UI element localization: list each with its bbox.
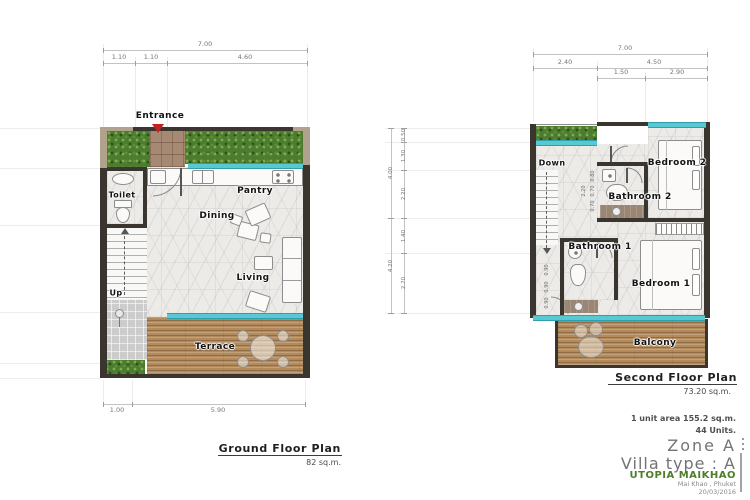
stove	[272, 170, 294, 184]
dim-tick	[707, 76, 708, 81]
balcony-rim	[555, 319, 558, 368]
dim-tick	[401, 253, 407, 254]
sf-dim-line-total	[533, 54, 707, 55]
closet-hangers	[655, 223, 704, 235]
wall	[597, 218, 710, 222]
dim-tick	[401, 313, 407, 314]
bedroom1-blanket-line	[652, 240, 653, 310]
terrace-chair	[237, 330, 249, 342]
bedroom2-pillow	[692, 170, 700, 190]
bathroom2-basin	[612, 207, 621, 216]
wall	[597, 162, 648, 166]
wall	[303, 127, 310, 165]
extension-line	[132, 380, 133, 404]
living-label: Living	[236, 273, 269, 283]
wall	[100, 127, 107, 168]
bathroom1-basin	[574, 302, 583, 311]
units-text: 44 Units.	[520, 426, 736, 435]
unit-area-text: 1 unit area 155.2 sq.m.	[520, 414, 736, 423]
balcony-lounge	[578, 336, 604, 358]
wall	[100, 168, 107, 378]
extension-line	[533, 48, 534, 122]
dim-tick	[103, 61, 104, 66]
wall	[143, 167, 147, 228]
gf-dim-seg2: 1.10	[144, 53, 158, 61]
planter-glass	[536, 140, 597, 146]
sf-chain-total: 2.20	[581, 185, 587, 196]
sf-dim-left-outer2: 4.20	[388, 260, 394, 272]
dim-tick	[597, 66, 598, 71]
second-floor-plan: Down Bedroom 2 Bathroom 2 2.20 0.80 0.70…	[530, 122, 710, 370]
dim-tick	[401, 218, 407, 219]
shower-stem	[119, 317, 120, 327]
stairs-down	[536, 170, 558, 245]
terrace-chair	[277, 330, 289, 342]
bathroom2-label: Bathroom 2	[608, 192, 671, 202]
bedroom2-label: Bedroom 2	[648, 158, 707, 168]
dim-tick	[401, 142, 407, 143]
terrace-label: Terrace	[195, 342, 235, 352]
dim-tick	[307, 61, 308, 66]
sf-b1chain1: 0.90	[544, 264, 550, 275]
sf-dim-left-inner5: 2.70	[401, 277, 407, 289]
terrace-chair	[277, 356, 289, 368]
dim-tick	[533, 52, 534, 57]
sf-b1chain2: 0.90	[544, 281, 550, 292]
stair-direction-arrow	[543, 248, 551, 254]
stair-direction-arrow	[121, 228, 129, 234]
construction-line	[0, 312, 100, 313]
terrace-table	[250, 335, 276, 361]
dim-tick	[597, 76, 598, 81]
balcony-label: Balcony	[634, 338, 677, 348]
coffee-table	[254, 256, 273, 270]
dim-tick	[135, 61, 136, 66]
down-label: Down	[539, 159, 566, 168]
entrance-stone-path	[150, 131, 185, 167]
sf-dim-sub1: 1.50	[614, 68, 628, 76]
gf-dim-bottom1: 1.00	[110, 406, 124, 414]
dim-tick	[707, 66, 708, 71]
gf-area: 82 sq.m.	[241, 458, 341, 467]
balcony-rim	[705, 319, 708, 368]
sf-chain2: 0.70	[590, 185, 596, 196]
dining-label: Dining	[199, 211, 234, 221]
sf-dim-left-inner2: 1.30	[401, 150, 407, 162]
gf-dim-line-bottom	[103, 404, 305, 405]
dim-tick	[388, 218, 394, 219]
planter-edge	[536, 124, 597, 125]
extension-line	[305, 380, 306, 404]
sf-area: 73.20 sq.m.	[631, 387, 731, 396]
gf-dim-seg1: 1.10	[112, 53, 126, 61]
sf-dim-left-outer1: 4.00	[388, 167, 394, 179]
wall	[530, 124, 536, 318]
sf-dim-left-inner3: 2.20	[401, 188, 407, 200]
wall	[103, 167, 147, 171]
dim-tick	[103, 48, 104, 53]
bathroom1-label: Bathroom 1	[568, 242, 631, 252]
terrace-chair	[237, 356, 249, 368]
grass-planter	[107, 131, 150, 167]
extension-line	[307, 44, 308, 127]
construction-line	[0, 128, 100, 129]
grass-planter	[185, 131, 303, 164]
sf-b1chain3: 0.90	[544, 297, 550, 308]
balcony-chair	[589, 322, 603, 336]
dim-tick	[307, 48, 308, 53]
balcony-rim	[555, 365, 708, 368]
ground-floor-plan: Toilet Up Pantry Dining Living Terrace	[100, 127, 310, 378]
dim-tick	[132, 402, 133, 407]
extension-line	[103, 44, 104, 127]
terrace-glass-door	[167, 313, 303, 319]
wall	[303, 165, 310, 378]
sf-chain1: 0.80	[590, 170, 596, 181]
sf-title-rule	[608, 384, 737, 385]
entrance-arrow-icon	[152, 124, 164, 133]
shower-court	[103, 300, 147, 360]
construction-line	[0, 363, 100, 364]
toilet-label: Toilet	[108, 191, 135, 200]
dim-tick	[305, 402, 306, 407]
stair-travel-line	[124, 231, 125, 295]
bedroom1-pillow	[692, 248, 700, 270]
kitchen-sink	[192, 170, 214, 184]
sf-chain3: 0.70	[590, 200, 596, 211]
pantry-window-glass	[188, 163, 303, 169]
sf-title: Second Floor Plan	[560, 371, 737, 384]
sf-dim-left-inner1: 0.50	[401, 129, 407, 141]
gf-dim-seg3: 4.60	[238, 53, 252, 61]
toilet-sink	[112, 173, 134, 185]
bedroom1-label: Bedroom 1	[632, 279, 691, 289]
sf-dim-sub2: 2.90	[670, 68, 684, 76]
wall	[704, 122, 710, 318]
sf-dim-line-sub	[597, 78, 707, 79]
stair-travel-line	[546, 172, 547, 248]
planter-strip	[536, 126, 597, 141]
dining-chair	[259, 232, 271, 243]
sf-dim-left-inner4: 1.40	[401, 230, 407, 242]
sf-dim-total: 7.00	[618, 44, 632, 52]
dim-tick	[388, 128, 394, 129]
dim-tick	[401, 170, 407, 171]
sf-dim-vline-outer	[391, 128, 392, 313]
dim-tick	[707, 52, 708, 57]
floor-plan-sheet: 7.00 1.10 1.10 4.60 1.00 5.90 Entrance	[0, 0, 750, 500]
dim-tick	[167, 61, 168, 66]
gf-dim-bottom2: 5.90	[211, 406, 225, 414]
bathroom2-door-arc	[626, 167, 643, 184]
zone-text: Zone A	[520, 436, 736, 455]
gf-dim-line-total	[103, 50, 307, 51]
bathroom2-sink	[602, 169, 616, 182]
grass-patch	[105, 360, 145, 374]
gf-title: Ground Floor Plan	[180, 442, 341, 455]
balcony-glass-door	[533, 315, 705, 321]
drawing-date: 20/03/2016	[520, 488, 736, 496]
dim-tick	[388, 313, 394, 314]
gf-title-rule	[218, 455, 342, 456]
wall	[560, 238, 564, 315]
bathroom2-vanity	[600, 205, 644, 218]
entrance-label: Entrance	[136, 111, 184, 121]
gf-dim-total: 7.00	[198, 40, 212, 48]
extension-line	[707, 48, 708, 122]
sf-dim-seg2: 4.50	[647, 58, 661, 66]
construction-line	[0, 378, 100, 379]
bedroom2-window-glass	[648, 122, 706, 128]
project-location: Mai Khao , Phuket	[520, 480, 736, 488]
up-label: Up	[109, 289, 122, 298]
sofa	[282, 237, 302, 303]
wall	[644, 162, 648, 218]
gf-dim-line-segments	[103, 63, 307, 64]
dim-tick	[533, 66, 534, 71]
entrance-door-arc	[152, 167, 182, 197]
title-block-bar	[740, 453, 742, 492]
wall	[100, 374, 310, 378]
revision-dots	[742, 438, 744, 440]
sf-dim-seg1: 2.40	[558, 58, 572, 66]
construction-line	[0, 168, 100, 169]
dim-tick	[103, 402, 104, 407]
bedroom1-pillow	[692, 274, 700, 296]
dim-tick	[645, 76, 646, 81]
construction-line	[0, 225, 100, 226]
pantry-label: Pantry	[237, 186, 273, 196]
extension-line	[103, 380, 104, 404]
